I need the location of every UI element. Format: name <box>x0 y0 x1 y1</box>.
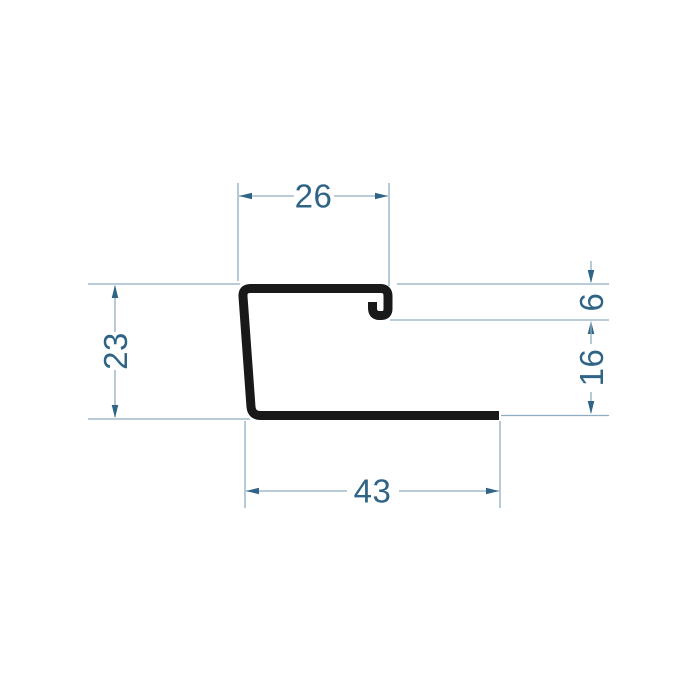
dimension-value-lip-height: 6 <box>573 293 610 312</box>
dimension-left-height: 23 <box>88 284 250 419</box>
dimension-value-lip-to-base: 16 <box>573 349 610 387</box>
arrow-left-icon <box>239 193 252 200</box>
arrow-left-icon <box>246 488 259 495</box>
drawing-canvas: 26 23 6 16 <box>0 0 700 700</box>
technical-drawing: 26 23 6 16 <box>0 0 700 700</box>
arrow-right-icon <box>375 193 388 200</box>
dimension-base-width: 43 <box>245 421 500 510</box>
dimension-value-left-height: 23 <box>97 332 134 370</box>
dimension-lip-height: 6 <box>390 261 610 320</box>
dimension-lip-to-base: 16 <box>501 321 610 416</box>
arrow-down-icon <box>588 270 595 283</box>
arrow-right-icon <box>486 488 499 495</box>
dimension-value-top-width: 26 <box>295 178 333 215</box>
arrow-down-icon <box>112 405 119 418</box>
profile <box>243 289 499 416</box>
dimension-value-base-width: 43 <box>354 473 392 510</box>
arrow-down-icon <box>588 401 595 414</box>
arrow-up-icon <box>112 285 119 298</box>
profile-outline <box>243 289 499 416</box>
dimension-top-width: 26 <box>238 178 389 287</box>
